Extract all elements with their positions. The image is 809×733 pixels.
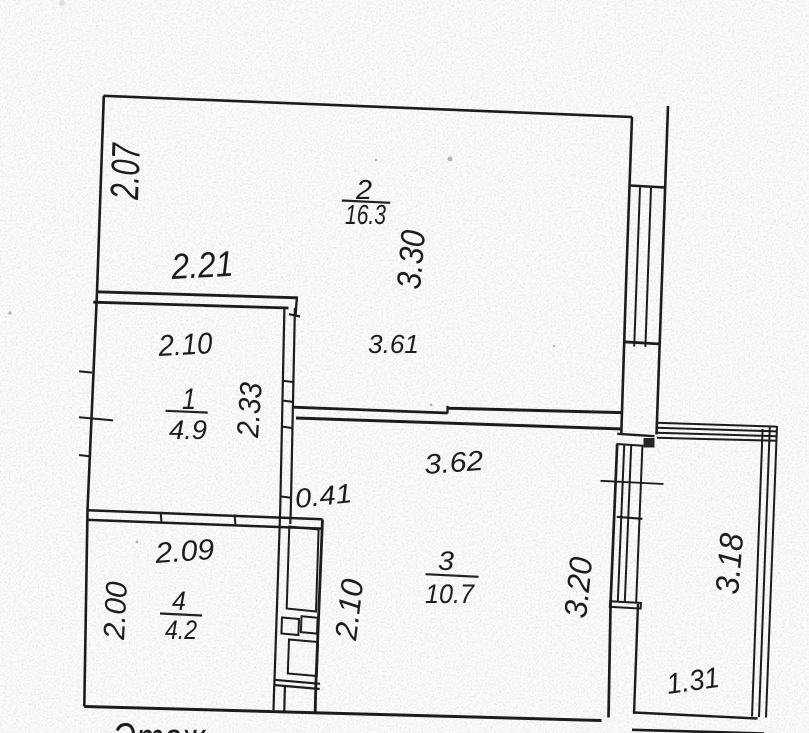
svg-text:2.33: 2.33 (230, 381, 269, 439)
svg-text:0.41: 0.41 (293, 478, 353, 514)
svg-text:4.2: 4.2 (165, 615, 197, 645)
svg-text:3: 3 (438, 546, 454, 576)
svg-text:3.62: 3.62 (423, 445, 484, 480)
svg-text:4: 4 (172, 586, 186, 616)
svg-text:3.61: 3.61 (368, 329, 419, 359)
svg-text:2.00: 2.00 (98, 580, 134, 641)
svg-text:2.09: 2.09 (153, 534, 215, 570)
svg-text:3.30: 3.30 (390, 229, 433, 291)
svg-text:4.9: 4.9 (169, 415, 207, 445)
svg-text:3.20: 3.20 (557, 555, 599, 620)
svg-text:2.07: 2.07 (103, 142, 149, 201)
svg-text:2.10: 2.10 (157, 327, 214, 363)
svg-text:10.7: 10.7 (425, 579, 475, 609)
svg-text:16.3: 16.3 (345, 199, 386, 230)
svg-text:2.21: 2.21 (169, 243, 234, 287)
svg-text:3.18: 3.18 (708, 531, 750, 596)
svg-text:Этаж: Этаж (113, 714, 207, 733)
